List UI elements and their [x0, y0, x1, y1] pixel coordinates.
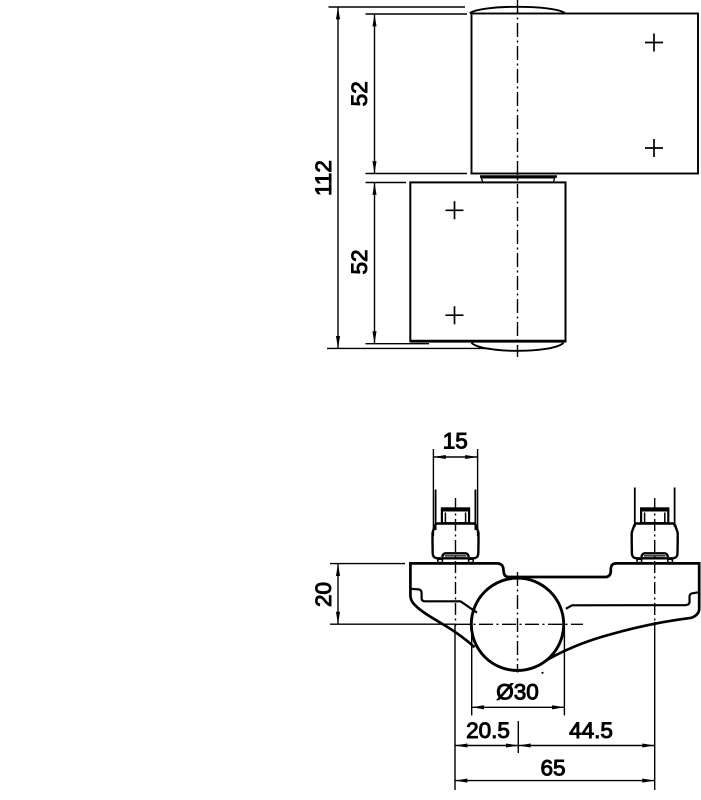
svg-text:52: 52	[347, 81, 372, 106]
svg-text:20.5: 20.5	[466, 718, 510, 743]
svg-text:15: 15	[443, 429, 468, 454]
svg-text:112: 112	[311, 160, 336, 196]
svg-text:65: 65	[540, 756, 565, 781]
svg-text:44.5: 44.5	[569, 718, 613, 743]
svg-text:52: 52	[347, 249, 372, 274]
svg-text:Ø30: Ø30	[496, 680, 539, 705]
svg-text:20: 20	[311, 582, 336, 607]
